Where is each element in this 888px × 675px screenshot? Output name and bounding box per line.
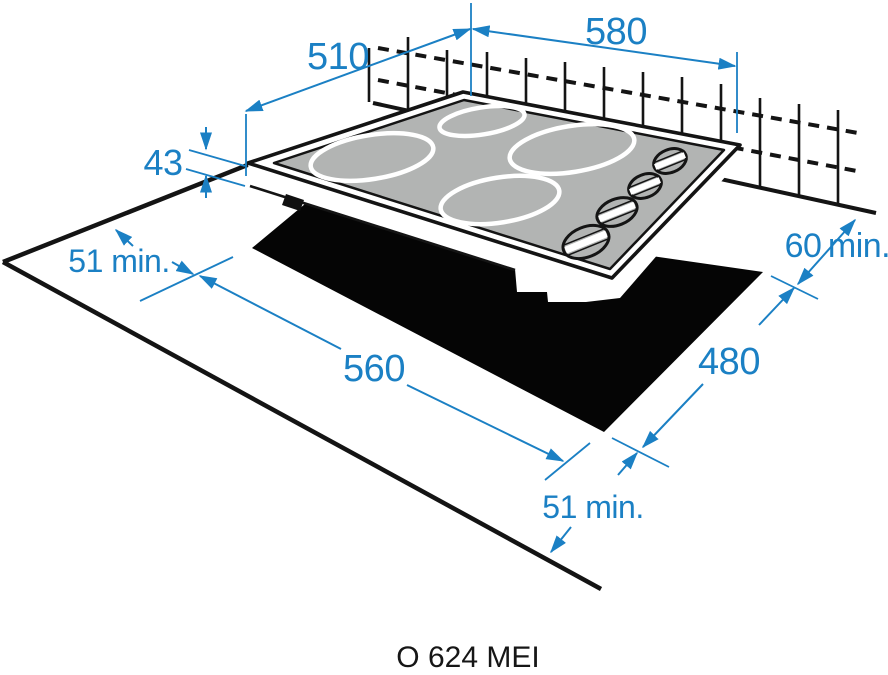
dim-label-left-clearance: 51 min. [68,243,169,279]
model-label: O 624 MEI [396,641,539,674]
dim-label-rear-clearance-value: 60 [785,227,822,265]
dim-label-cutout-depth: 480 [698,341,760,383]
dim-label-front-clearance: 51 min. [542,489,643,525]
dim-label-width: 580 [585,11,647,53]
installation-diagram: 510 580 43 51 min. 560 480 60 min. 51 mi… [0,0,888,675]
dim-label-depth: 510 [307,36,369,78]
dim-label-rear-clearance-unit: min. [828,227,888,265]
dim-label-height: 43 [143,142,182,183]
dim-label-cutout-width: 560 [343,348,405,390]
diagram-canvas: 510 580 43 51 min. 560 480 60 min. 51 mi… [0,0,888,675]
